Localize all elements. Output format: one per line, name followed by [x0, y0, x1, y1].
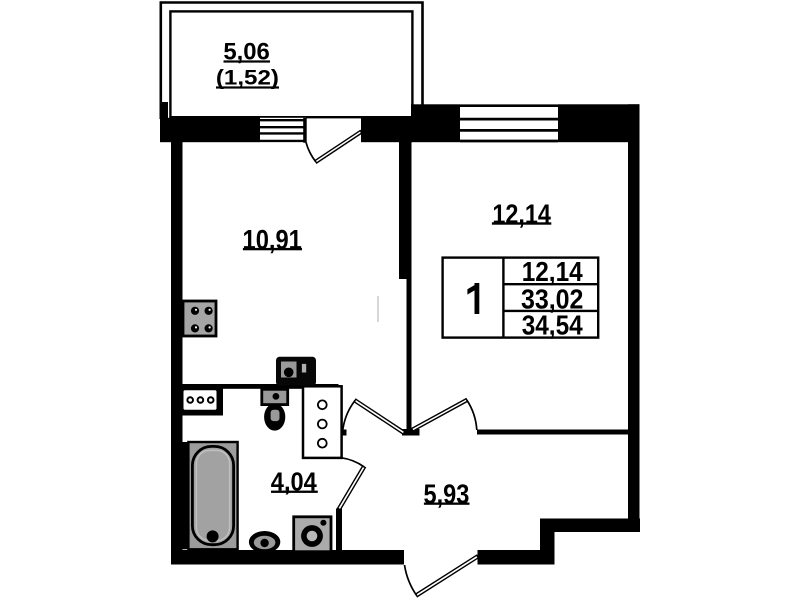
svg-text:(1,52): (1,52) — [216, 65, 279, 89]
svg-text:5,93: 5,93 — [424, 479, 470, 510]
svg-text:10,91: 10,91 — [243, 224, 302, 255]
svg-text:34,54: 34,54 — [522, 310, 584, 341]
